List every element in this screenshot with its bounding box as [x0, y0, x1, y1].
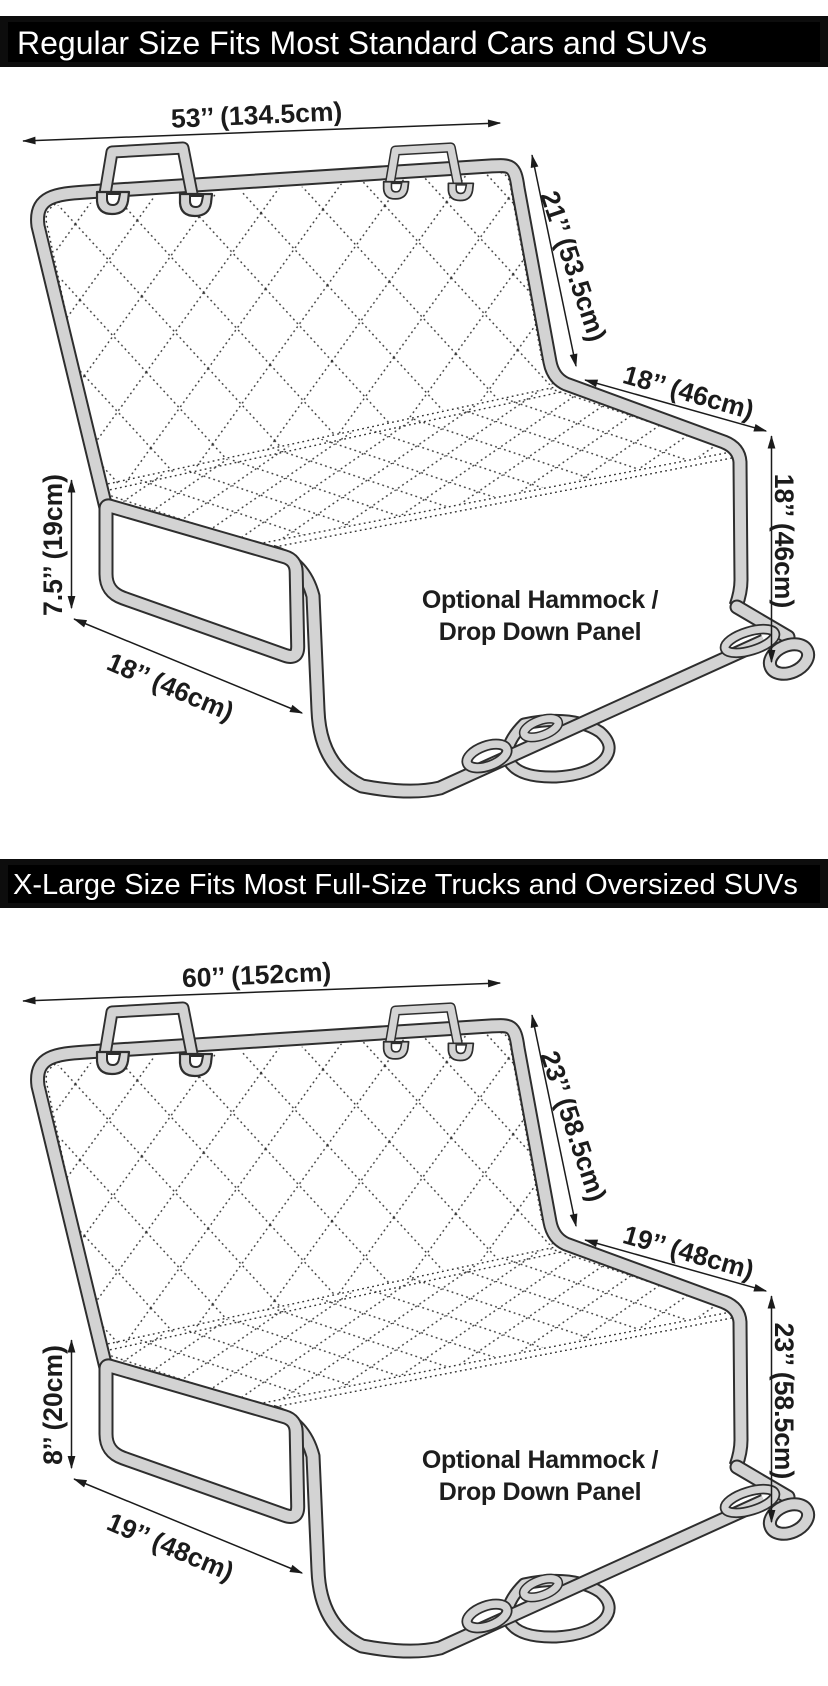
svg-text:Optional Hammock /: Optional Hammock / [422, 586, 659, 614]
svg-text:Optional Hammock /: Optional Hammock / [422, 1446, 659, 1474]
svg-text:18’’ (46cm): 18’’ (46cm) [769, 474, 799, 609]
svg-text:60’’ (152cm): 60’’ (152cm) [181, 957, 331, 993]
svg-text:Drop Down Panel: Drop Down Panel [439, 618, 641, 646]
svg-text:8’’ (20cm): 8’’ (20cm) [38, 1345, 68, 1465]
svg-text:53’’ (134.5cm): 53’’ (134.5cm) [170, 96, 343, 133]
svg-text:23’’ (58.5cm): 23’’ (58.5cm) [769, 1323, 799, 1480]
svg-text:7.5’’ (19cm): 7.5’’ (19cm) [38, 474, 68, 616]
svg-text:Drop Down Panel: Drop Down Panel [439, 1478, 641, 1506]
